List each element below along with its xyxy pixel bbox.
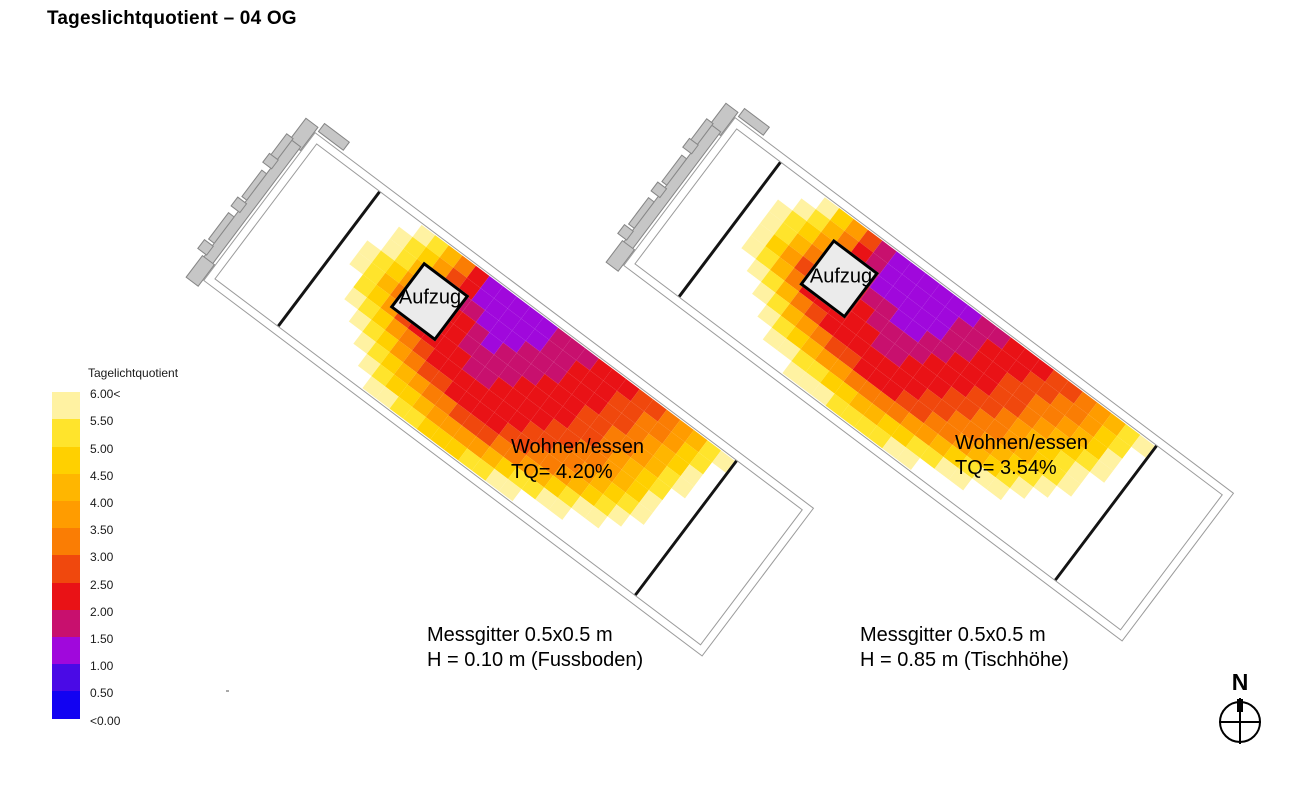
daylight-report-page: Tageslichtquotient – 04 OG Tagelichtquot… — [0, 0, 1300, 799]
legend-label: 3.50 — [90, 523, 113, 537]
legend-swatch — [52, 610, 80, 637]
legend-swatch — [52, 501, 80, 528]
legend-swatch — [52, 419, 80, 446]
legend-label: 3.00 — [90, 550, 113, 564]
legend-swatch — [52, 392, 80, 419]
legend-label: 5.00 — [90, 442, 113, 456]
legend-label: 5.50 — [90, 414, 113, 428]
legend-swatch — [52, 583, 80, 610]
caption-right-line1: Messgitter 0.5x0.5 m — [860, 623, 1069, 648]
legend-label: 6.00< — [90, 387, 120, 401]
legend-label: 2.00 — [90, 605, 113, 619]
legend-swatch — [52, 474, 80, 501]
aufzug-label-left: Aufzug — [399, 286, 461, 311]
aufzug-label-right: Aufzug — [810, 265, 872, 290]
page-title: Tageslichtquotient – 04 OG — [47, 8, 297, 30]
legend-title: Tagelichtquotient — [88, 366, 178, 380]
legend-label: <0.00 — [90, 714, 120, 728]
caption-left-line1: Messgitter 0.5x0.5 m — [427, 623, 643, 648]
room-tq-right: TQ= 3.54% — [955, 456, 1088, 481]
legend-swatch — [52, 691, 80, 718]
caption-right-line2: H = 0.85 m (Tischhöhe) — [860, 648, 1069, 673]
legend-swatch — [52, 447, 80, 474]
caption-right: Messgitter 0.5x0.5 m H = 0.85 m (Tischhö… — [860, 623, 1069, 673]
legend-label: 2.50 — [90, 578, 113, 592]
legend-swatch — [52, 365, 80, 392]
speck — [226, 690, 229, 692]
caption-left-line2: H = 0.10 m (Fussboden) — [427, 648, 643, 673]
legend-label: 1.50 — [90, 632, 113, 646]
legend-label: 0.50 — [90, 686, 113, 700]
legend-label: 1.00 — [90, 659, 113, 673]
legend-swatch — [52, 664, 80, 691]
compass-needle-tip — [1237, 699, 1243, 712]
legend-label: 4.00 — [90, 496, 113, 510]
room-name-left: Wohnen/essen — [511, 435, 644, 460]
room-tq-left: TQ= 4.20% — [511, 460, 644, 485]
room-label-right: Wohnen/essen TQ= 3.54% — [955, 431, 1088, 481]
legend-swatch — [52, 528, 80, 555]
caption-left: Messgitter 0.5x0.5 m H = 0.10 m (Fussbod… — [427, 623, 643, 673]
room-label-left: Wohnen/essen TQ= 4.20% — [511, 435, 644, 485]
legend-swatch — [52, 555, 80, 582]
legend-swatch — [52, 637, 80, 664]
room-name-right: Wohnen/essen — [955, 431, 1088, 456]
compass-north-label: N — [1226, 669, 1254, 696]
legend-label: 4.50 — [90, 469, 113, 483]
